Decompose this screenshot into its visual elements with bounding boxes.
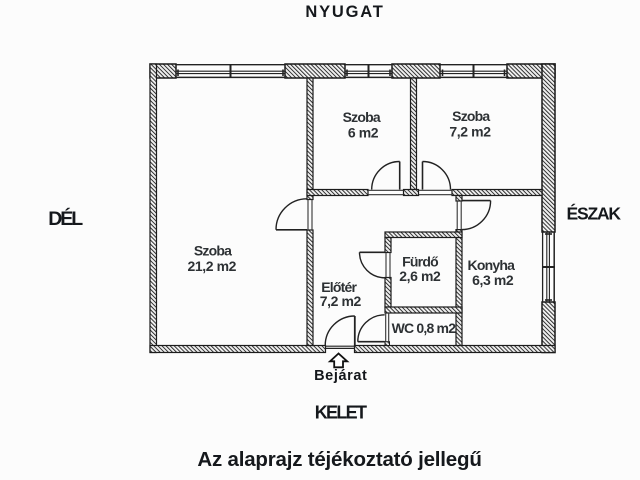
svg-text:ÉSZAK: ÉSZAK [567,203,622,224]
svg-text:6,3 m2: 6,3 m2 [472,272,514,288]
svg-text:Konyha: Konyha [468,257,516,273]
svg-text:NYUGAT: NYUGAT [305,3,384,21]
svg-text:WC 0,8 m2: WC 0,8 m2 [392,320,457,336]
svg-text:21,2 m2: 21,2 m2 [188,258,237,274]
svg-text:Fürdő: Fürdő [402,253,438,269]
svg-text:7,2 m2: 7,2 m2 [449,123,491,139]
svg-text:Szoba: Szoba [194,242,232,258]
svg-text:7,2 m2: 7,2 m2 [320,293,362,309]
svg-text:KELET: KELET [315,403,367,423]
svg-text:Az alaprajz téjékoztató jelleg: Az alaprajz téjékoztató jellegű [197,448,481,471]
svg-text:2,6 m2: 2,6 m2 [399,268,441,284]
svg-text:DÉL: DÉL [48,207,83,230]
svg-text:Bejárat: Bejárat [314,368,367,384]
svg-text:Szoba: Szoba [452,108,490,124]
svg-text:Szoba: Szoba [343,109,381,125]
svg-text:6 m2: 6 m2 [348,125,379,141]
